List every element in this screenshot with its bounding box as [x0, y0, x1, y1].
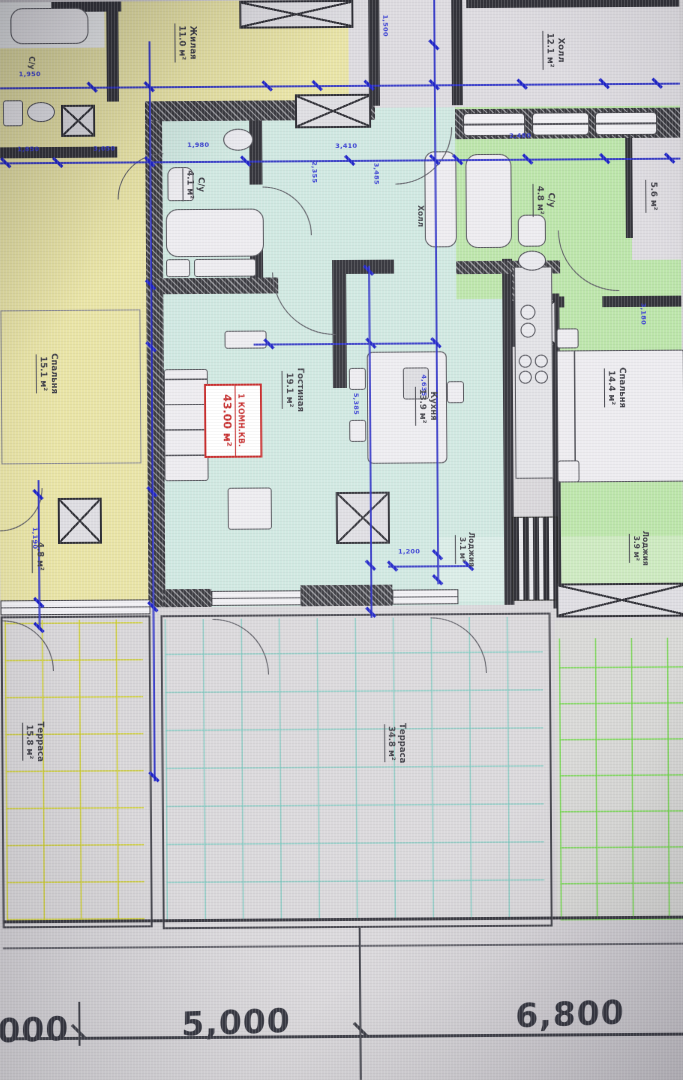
- wall-corridor-left: [368, 0, 380, 106]
- dim-label: 3,410: [335, 142, 357, 150]
- room-label-bedroom-left: Спальня15.1 м²: [35, 353, 59, 394]
- kitchen-sink-1: [520, 305, 535, 320]
- window-center-bottom-2: [392, 589, 458, 604]
- room-label-4-8-left: 4.8 м²: [32, 540, 45, 573]
- room-label-jilaya: Жилая11.0 м²: [174, 23, 198, 62]
- region-topleft-wc-yellow: [0, 48, 109, 101]
- column-center-top: [295, 94, 371, 129]
- green-top-window-2: [532, 112, 589, 135]
- chair-1: [349, 368, 366, 390]
- window-center-bottom-1: [211, 590, 301, 606]
- bathtub-topleft: [10, 8, 88, 45]
- chair-2: [349, 420, 366, 442]
- toilet-topleft: [3, 100, 23, 126]
- coffee-table: [228, 487, 272, 529]
- nightstand-green-1: [557, 328, 579, 348]
- room-label-loggia-center: Лоджия3.1 м²: [455, 532, 476, 567]
- toilet-green: [518, 215, 546, 247]
- wall-bath-bottom: [146, 277, 278, 294]
- wall-center-bottom-b: [300, 585, 392, 607]
- stove-burner-4: [535, 371, 548, 384]
- bathtub-center: [166, 209, 264, 258]
- nightstand-green-2: [557, 460, 579, 482]
- room-outline-bedroom-left: [0, 309, 141, 464]
- site-line-2: [3, 943, 683, 949]
- screen-photo: 1,950 1,850 3,050 1,980 3,410 2,480 1,20…: [0, 0, 683, 1080]
- ruler-label-000: 000: [0, 1009, 70, 1051]
- apartment-badge-text: 1 КОМН.КВ. 43.00 м²: [220, 385, 246, 457]
- column-top-center: [239, 0, 353, 29]
- wall-bath-right-a: [249, 121, 262, 185]
- ruler-line: [3, 1033, 683, 1040]
- column-green-bottom: [556, 583, 683, 618]
- wall-center-bottom-a: [163, 589, 211, 607]
- column-left-bottom: [58, 498, 102, 544]
- room-label-wc-green: С/у4.8 м²: [532, 184, 555, 217]
- room-label-bedroom-green: Спальня14.4 м²: [604, 367, 628, 408]
- dim-label: 1,950: [19, 70, 41, 78]
- region-corridor: [348, 0, 680, 108]
- dim-label: 1,980: [187, 141, 209, 149]
- room-label-wc-left: С/у: [26, 56, 35, 69]
- wall-5-6-divider: [625, 138, 633, 238]
- sink-center-bath: [223, 129, 253, 151]
- dim-label: 3,050: [93, 145, 115, 153]
- bathtub-green: [465, 154, 512, 248]
- stove-burner-3: [519, 371, 532, 384]
- washer-center: [166, 259, 190, 277]
- column-topleft: [61, 105, 95, 137]
- region-loggia-right: [556, 536, 683, 585]
- green-top-window-3: [595, 112, 657, 135]
- room-label-hall-12: Холл12.1 м²: [542, 31, 566, 70]
- window-block-right: [512, 516, 559, 600]
- room-label-kitchen: Кухня13.9 м²: [415, 387, 439, 426]
- sink-topleft: [27, 102, 55, 122]
- floor-plan: 1,950 1,850 3,050 1,980 3,410 2,480 1,20…: [0, 0, 683, 1080]
- dim-label: 5,385: [352, 393, 360, 415]
- wall-corridor-right: [451, 0, 463, 105]
- cabinet-center: [194, 259, 256, 277]
- room-label-5-6: 5.6 м²: [646, 180, 659, 213]
- ruler-ext-1: [78, 1002, 80, 1046]
- ruler-label-5000: 5,000: [181, 1001, 291, 1044]
- ruler-label-6800: 6,800: [515, 992, 625, 1035]
- dim-label: 2,355: [310, 161, 318, 183]
- dim-label: 1,850: [17, 145, 39, 153]
- room-label-terrace-left: Терраса15.8 м²: [22, 722, 46, 762]
- dim-label: 1,500: [381, 15, 389, 37]
- dim-label: 1,200: [398, 547, 420, 555]
- apartment-badge: 1 КОМН.КВ. 43.00 м²: [204, 384, 263, 458]
- chair-3: [447, 381, 464, 403]
- ruler-ext-2: [359, 928, 362, 1080]
- stove-burner-2: [535, 355, 548, 368]
- room-label-loggia-right: Лоджия3.9 м²: [629, 531, 650, 566]
- stove-burner-1: [519, 355, 532, 368]
- dim-label: 2,480: [509, 132, 531, 140]
- room-label-wc-center: С/у4.1 м²: [182, 168, 205, 201]
- sink-green: [518, 251, 546, 271]
- dim-label: 3,180: [639, 303, 647, 325]
- tv-stand: [225, 331, 267, 349]
- room-label-hall-center: Холл: [416, 205, 426, 227]
- terrace-right-grid: [559, 638, 683, 921]
- column-center-bottom: [336, 492, 390, 544]
- dim-label: 3,485: [372, 163, 380, 185]
- room-label-living: Гостиная19.1 м²: [281, 368, 305, 412]
- room-label-terrace-center: Терраса34.8 м²: [384, 723, 408, 763]
- window-left-bottom: [0, 599, 150, 615]
- closet-living: [164, 369, 209, 481]
- kitchen-sink-2: [520, 323, 535, 338]
